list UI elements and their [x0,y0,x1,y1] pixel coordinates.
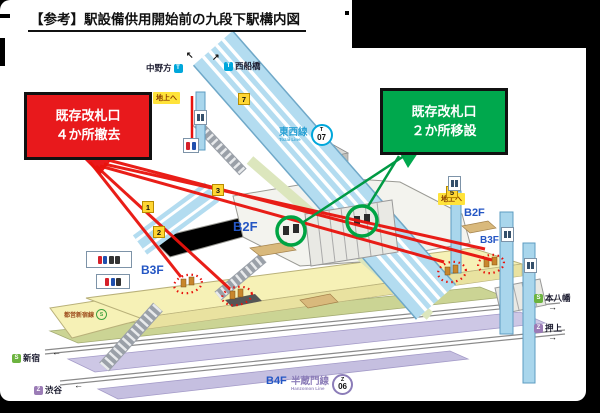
callout-gates-removed: 既存改札口 ４か所撤去 [24,92,152,160]
page-title: 【参考】駅設備供用開始前の九段下駅構内図 [28,8,306,32]
arrow-up-right: ↗ [212,52,220,63]
callout-gates-relocated: 既存改札口 ２か所移設 [380,88,508,155]
line-code-number: 07 [317,134,326,142]
floor-label-b4f: B4F [266,375,287,387]
floor-label-b2f: B2F [233,219,258,234]
floor-label-b2f-right: B2F [464,207,485,219]
exit-marker-2: 2 [153,226,165,238]
hanzomon-line-icon: Z [534,324,543,333]
accessible-restroom-glyph [115,256,120,264]
direction-nakano: 中野方 T [146,62,183,74]
hanzomon-station-badge: Z 06 [332,374,353,395]
toei-shinjuku-line-label: 都営新宿線 S [64,309,107,320]
floor-label-b3f: B3F [141,263,164,277]
elevator-door [197,114,200,121]
toei-shinjuku-line-icon: S [12,354,21,363]
exit-marker-3: 3 [212,184,224,196]
direction-text: 新宿 [23,352,40,364]
arrow-left: ← [52,347,61,357]
exit-marker-1: 1 [142,201,154,213]
elevator-door [201,114,204,121]
floor-label-b3f-right: B3F [480,235,499,246]
screenshot-frame: 【参考】駅設備供用開始前の九段下駅構内図 既存改札口 ４か所撤去 既存改札口 ２… [0,0,600,413]
arrow-right: → [548,332,557,342]
restroom-icon [86,251,132,268]
callout-line: ４か所撤去 [55,126,120,145]
toei-line-badge: S [96,309,107,320]
direction-text: 渋谷 [45,384,62,396]
men-restroom-glyph [192,142,196,150]
restroom-icon [183,138,199,153]
line-name-jp: 都営新宿線 [64,310,94,319]
elevator-icon [194,110,207,125]
women-restroom-glyph [186,142,190,150]
line-code-number: 06 [338,383,347,391]
tozai-line-icon: T [174,64,183,73]
hanzomon-line-icon: Z [34,386,43,395]
tozai-line-name: 東西線 Tozai Line [279,128,308,143]
elevator-door [527,262,530,269]
exit-marker-7: 7 [238,93,250,105]
tozai-station-badge: T 07 [311,124,333,146]
callout-line: 既存改札口 [55,107,120,126]
men-restroom-glyph [111,278,115,286]
black-background-cut [352,0,600,48]
accessible-restroom-glyph [109,256,114,264]
tozai-line-label: 東西線 Tozai Line T 07 [279,124,333,146]
line-name-en: Hanzomon Line [291,387,329,392]
elevator-door [508,231,511,238]
direction-nishi-funabashi: T 西船橋 [224,60,261,72]
callout-line: 既存改札口 [411,103,476,122]
elevator-door [531,262,534,269]
edge-artifact [0,38,5,66]
arrow-left: ← [74,380,83,390]
elevator-icon [501,227,514,242]
women-restroom-glyph [98,256,102,264]
accessible-restroom-glyph [116,278,121,286]
edge-artifact [0,14,10,18]
men-restroom-glyph [103,256,107,264]
direction-text: 中野方 [146,62,172,74]
direction-shibuya: Z 渋谷 [34,384,62,396]
elevator-icon [524,258,537,273]
page-card [0,0,586,401]
toei-shinjuku-line-icon: S [534,294,543,303]
to-ground-sign: 地上へ [153,92,180,104]
hanzomon-line-name: 半蔵門線 Hanzomon Line [291,377,329,392]
elevator-door [455,180,458,187]
arrow-up-left: ↖ [186,50,194,61]
tozai-line-icon: T [224,62,233,71]
hanzomon-line-label: 半蔵門線 Hanzomon Line Z 06 [291,374,353,395]
elevator-door [451,180,454,187]
callout-line: ２か所移設 [411,122,476,141]
restroom-icon [96,274,130,289]
edge-artifact [345,11,349,15]
arrow-right: → [548,302,557,312]
direction-text: 西船橋 [235,60,261,72]
elevator-icon [448,176,461,191]
elevator-door [504,231,507,238]
line-name-en: Tozai Line [279,138,308,143]
direction-shinjuku: S 新宿 [12,352,40,364]
women-restroom-glyph [105,278,109,286]
